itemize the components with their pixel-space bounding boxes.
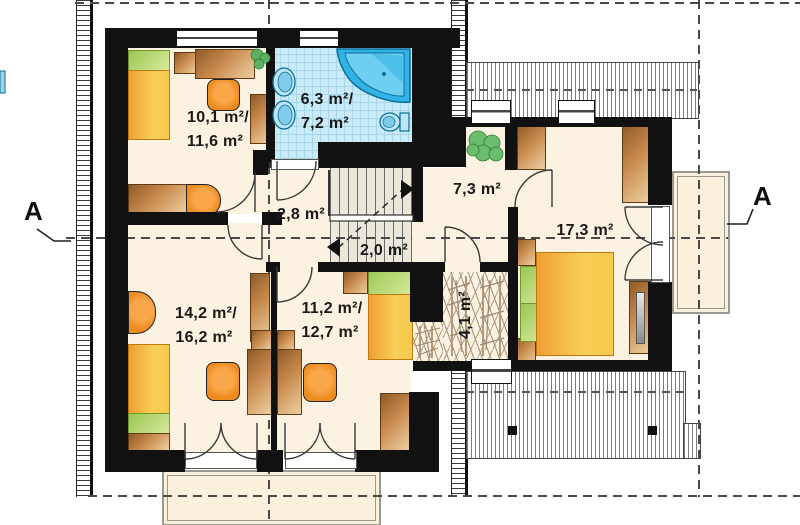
area-label: 6,3 m²/	[301, 91, 354, 109]
wall	[266, 28, 275, 168]
wall	[410, 267, 443, 322]
mirror-icon	[636, 292, 645, 344]
bed-icon	[368, 294, 413, 360]
cabinet-icon	[251, 330, 272, 351]
office-chair-icon	[206, 362, 240, 401]
wardrobe-icon	[517, 124, 546, 170]
room-wardrobe-niche	[413, 320, 443, 363]
area-label: 16,2 m²	[175, 329, 232, 347]
area-label: 7,2 m²	[301, 115, 349, 133]
wall	[105, 28, 128, 472]
wall	[318, 262, 420, 272]
office-chair-icon	[207, 79, 240, 111]
pillow-icon	[128, 50, 170, 72]
wall	[412, 28, 451, 167]
dresser-icon	[380, 393, 411, 451]
desk-icon	[195, 49, 255, 79]
area-label: 11,6 m²	[187, 133, 243, 151]
balcony-door-threshold	[651, 206, 670, 283]
office-chair-icon	[303, 363, 337, 402]
area-label: 14,2 m²/	[175, 305, 237, 323]
roof-line-vertical-right	[698, 0, 700, 497]
area-label: 17,3 m²	[556, 222, 613, 240]
bed-icon	[128, 70, 170, 140]
desk-icon	[247, 349, 273, 415]
window	[558, 100, 595, 124]
wall	[648, 282, 672, 371]
wall	[508, 207, 518, 362]
roof-edge-left	[76, 0, 93, 497]
area-label: 7,3 m²	[453, 181, 501, 199]
dresser-icon	[128, 184, 188, 214]
window	[471, 100, 511, 124]
section-marker-a-right: A	[753, 181, 772, 212]
wall	[105, 28, 460, 48]
area-label: 11,2 m²/	[301, 300, 362, 318]
desk-side-icon	[174, 52, 197, 74]
eave-line-bottom	[88, 495, 800, 497]
section-marker-leader-right	[727, 209, 753, 224]
door-threshold	[271, 159, 319, 170]
pillow-icon	[128, 413, 170, 435]
door-threshold	[285, 452, 357, 469]
wall	[318, 142, 412, 168]
roof-dash-bottom	[466, 391, 684, 393]
wall	[257, 450, 283, 472]
nightstand-icon	[343, 270, 368, 294]
balcony-right	[672, 171, 730, 314]
pillow-icon	[368, 268, 413, 296]
window	[299, 30, 339, 47]
area-label: 4,1 m²	[457, 291, 475, 339]
chimney-icon	[648, 426, 657, 435]
wall	[505, 117, 517, 170]
wall	[412, 167, 423, 222]
section-line-a-a	[66, 237, 728, 239]
terrace-bottom	[162, 470, 381, 525]
wall	[451, 117, 466, 167]
desk-icon	[277, 349, 302, 415]
area-label: 2,8 m²	[277, 206, 325, 224]
roof-slope-bottom	[466, 371, 686, 459]
bed-icon	[128, 344, 170, 415]
wall	[409, 392, 439, 469]
section-marker-a-left: A	[24, 196, 43, 227]
section-marker-leader-left	[37, 229, 71, 241]
bed-chest-icon	[128, 433, 170, 451]
door-threshold	[185, 452, 257, 469]
area-label: 2,0 m²	[360, 242, 408, 260]
chimney-icon	[508, 426, 517, 435]
floor-plan: 10,1 m²/ 11,6 m² 6,3 m²/ 7,2 m² 2,8 m² 2…	[0, 0, 800, 525]
area-label: 10,1 m²/	[187, 109, 249, 127]
window	[176, 30, 258, 47]
double-bed-icon	[536, 252, 614, 356]
cabinet-icon	[277, 330, 295, 351]
wall	[253, 150, 268, 175]
wall	[107, 212, 228, 225]
wall	[480, 262, 510, 272]
wall	[105, 450, 185, 472]
roof-window	[471, 359, 512, 384]
wall-partition	[271, 267, 277, 450]
wall	[648, 117, 672, 205]
ridge-line-top	[75, 2, 800, 4]
area-label: 12,7 m²	[301, 324, 358, 342]
wardrobe-icon	[622, 124, 650, 203]
roof-dash-top	[466, 89, 697, 91]
room-wardrobe	[441, 270, 510, 363]
